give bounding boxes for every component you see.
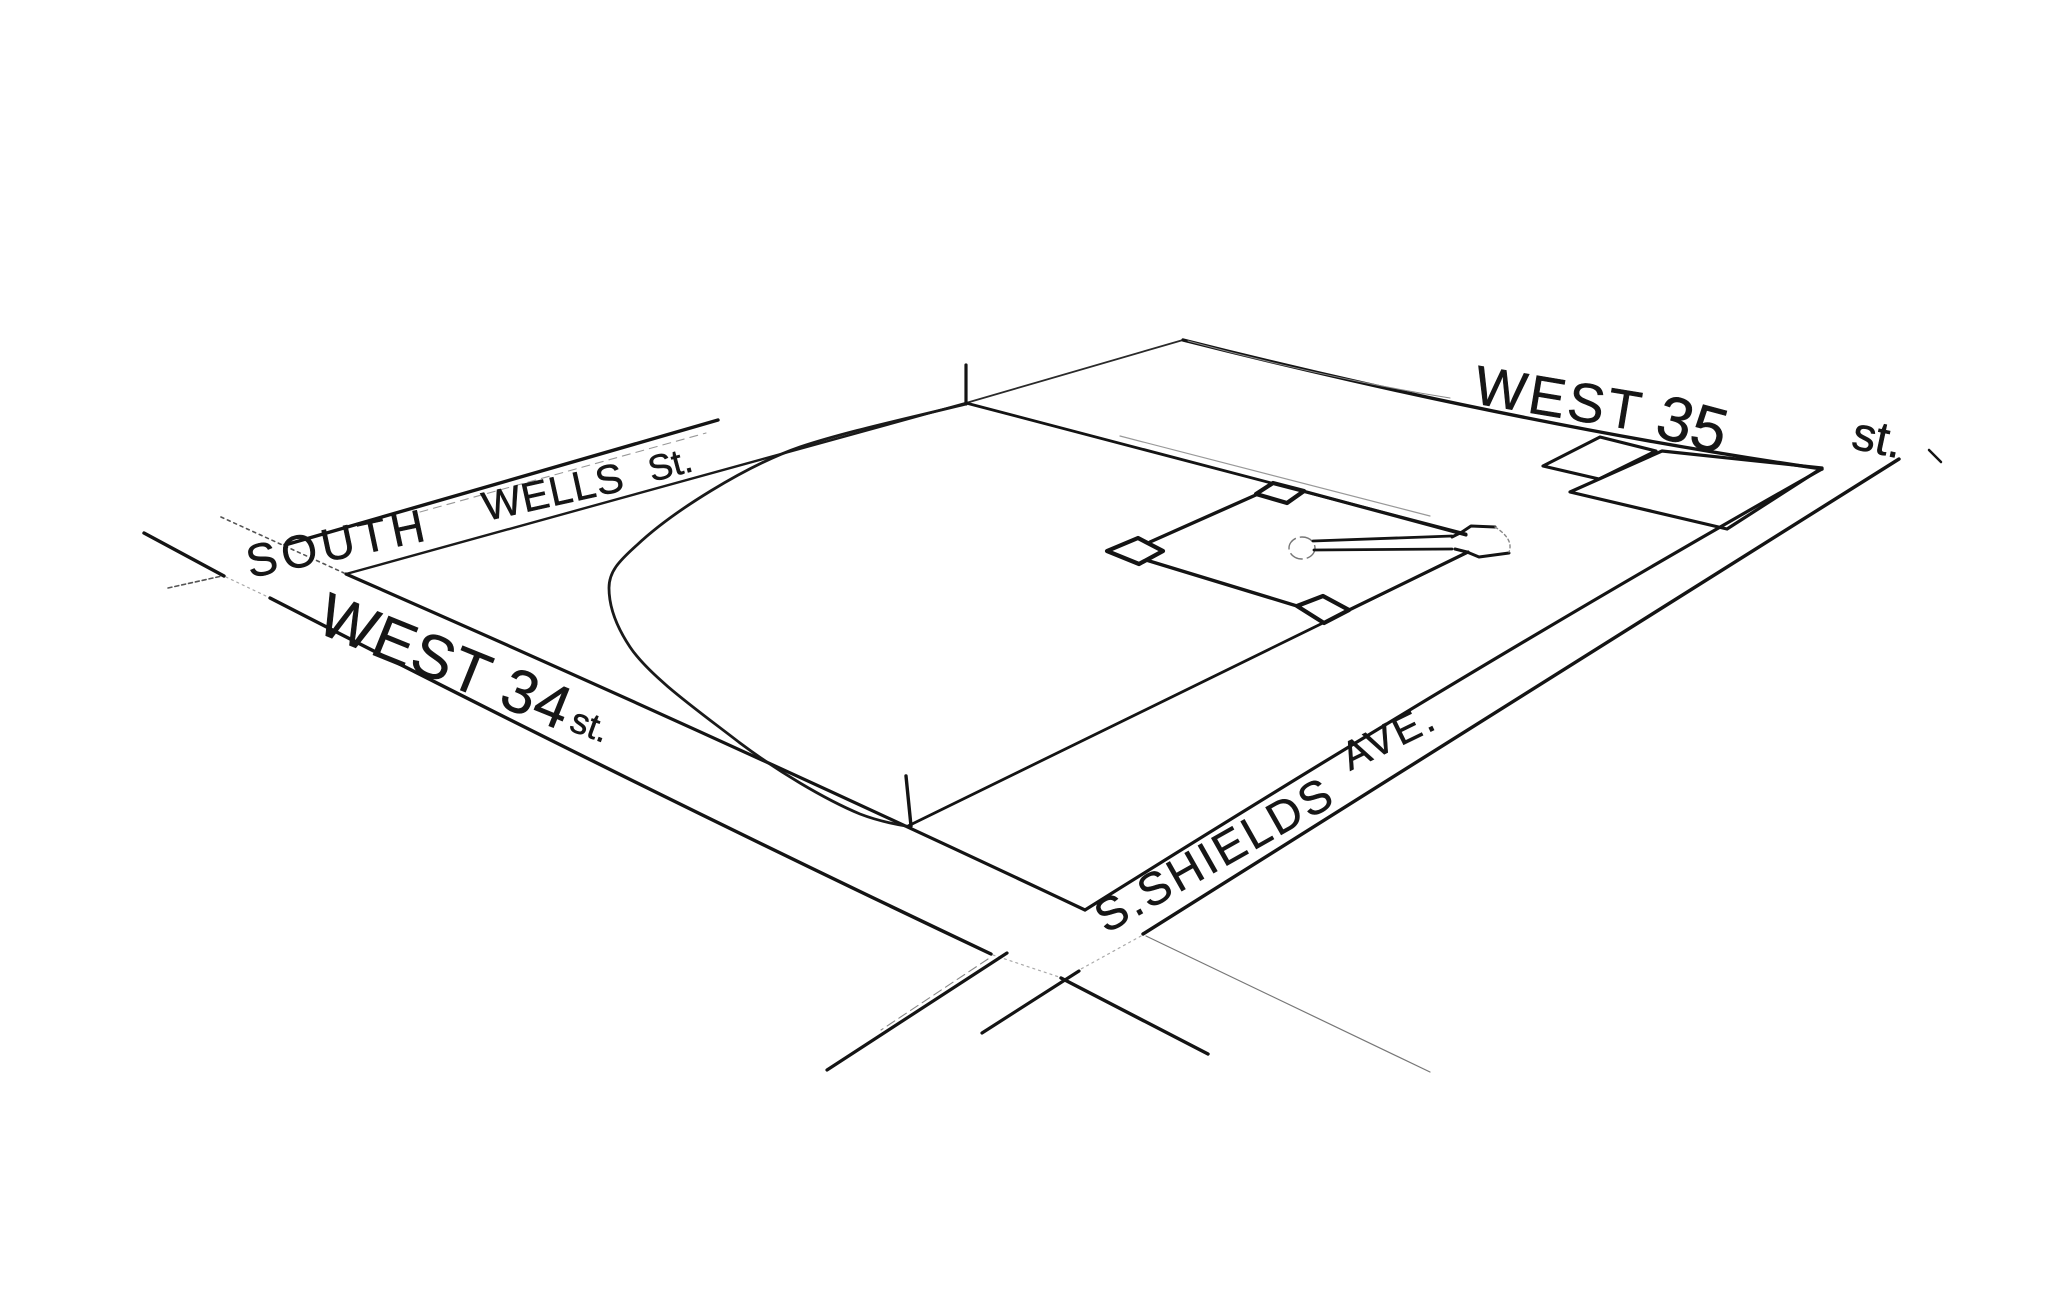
svg-text:AVE.: AVE. [1335,696,1444,779]
svg-text:S.SHIELDS: S.SHIELDS [1085,766,1343,943]
svg-text:St.: St. [643,439,696,490]
svg-text:WEST: WEST [1470,354,1649,443]
svg-text:SOUTH: SOUTH [241,498,434,588]
svg-text:st.: st. [565,699,615,751]
svg-text:WELLS: WELLS [478,454,629,530]
